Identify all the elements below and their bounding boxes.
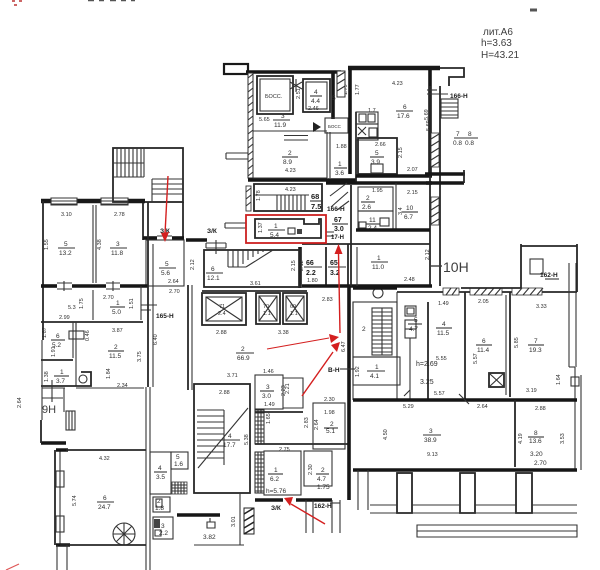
svg-text:2.48: 2.48 (404, 277, 415, 283)
svg-text:71: 71 (219, 304, 225, 310)
svg-text:2.99: 2.99 (59, 315, 70, 321)
svg-text:38.9: 38.9 (424, 437, 437, 444)
svg-text:6.47: 6.47 (341, 341, 347, 352)
svg-text:4.23: 4.23 (392, 81, 403, 87)
svg-text:5.4: 5.4 (270, 232, 279, 239)
svg-text:3.7: 3.7 (56, 378, 65, 385)
svg-text:4.23: 4.23 (285, 168, 296, 174)
svg-text:6: 6 (482, 338, 486, 345)
svg-text:2.83: 2.83 (322, 297, 333, 303)
svg-text:5: 5 (375, 150, 379, 157)
svg-text:7.5: 7.5 (311, 202, 321, 211)
svg-text:5.3: 5.3 (68, 305, 76, 311)
svg-text:4: 4 (442, 321, 446, 328)
svg-text:В-Н: В-Н (328, 367, 340, 374)
svg-text:3.71: 3.71 (227, 373, 238, 379)
svg-text:h=3.63: h=3.63 (481, 38, 512, 49)
svg-text:5.55: 5.55 (436, 356, 447, 362)
svg-text:2.30: 2.30 (324, 397, 335, 403)
svg-text:9.13: 9.13 (427, 452, 438, 458)
svg-text:11.5: 11.5 (109, 353, 122, 360)
svg-text:10Н: 10Н (443, 259, 469, 275)
svg-text:3.0: 3.0 (262, 393, 271, 400)
svg-text:2.21: 2.21 (285, 383, 291, 394)
svg-text:5.69: 5.69 (426, 120, 432, 131)
svg-text:11.8: 11.8 (111, 250, 124, 257)
svg-text:6: 6 (56, 333, 60, 340)
svg-text:1: 1 (375, 364, 379, 371)
svg-text:2.66: 2.66 (375, 142, 386, 148)
svg-text:4.7: 4.7 (317, 476, 326, 483)
svg-text:2.51: 2.51 (296, 88, 302, 99)
svg-text:66: 66 (306, 260, 314, 267)
svg-text:4.19: 4.19 (518, 433, 524, 444)
svg-text:19.3: 19.3 (529, 347, 542, 354)
svg-text:2: 2 (114, 344, 118, 351)
svg-text:5: 5 (64, 241, 68, 248)
svg-text:h=5.76: h=5.76 (266, 488, 286, 495)
svg-text:1.80: 1.80 (307, 278, 318, 284)
svg-text:1.65: 1.65 (266, 413, 272, 424)
svg-text:17.7: 17.7 (223, 442, 236, 449)
svg-text:1.88: 1.88 (336, 144, 347, 150)
svg-text:1.46: 1.46 (263, 369, 274, 375)
svg-text:3: 3 (281, 113, 285, 120)
svg-text:2.64: 2.64 (17, 397, 23, 408)
svg-text:10: 10 (406, 205, 414, 212)
svg-text:5.74: 5.74 (72, 495, 78, 506)
svg-text:2.30: 2.30 (308, 464, 314, 475)
svg-text:H=43.21: H=43.21 (481, 50, 520, 61)
svg-text:1.64: 1.64 (556, 374, 562, 385)
svg-text:1.49: 1.49 (264, 402, 275, 408)
svg-text:4.38: 4.38 (97, 239, 103, 250)
svg-text:лит.А6: лит.А6 (483, 27, 513, 38)
svg-text:68: 68 (311, 192, 319, 201)
svg-text:3.33: 3.33 (536, 304, 547, 310)
svg-text:8.9: 8.9 (283, 159, 292, 166)
svg-text:1.77: 1.77 (355, 84, 361, 95)
svg-text:1.87: 1.87 (42, 327, 48, 338)
svg-text:3.61: 3.61 (250, 281, 261, 287)
svg-text:1.98: 1.98 (324, 410, 335, 416)
svg-text:1.55: 1.55 (44, 239, 50, 250)
svg-text:2.2: 2.2 (306, 270, 316, 277)
svg-text:2.83: 2.83 (304, 417, 310, 428)
svg-text:1.49: 1.49 (438, 301, 449, 307)
svg-text:7: 7 (456, 131, 460, 138)
svg-text:3.82: 3.82 (203, 534, 216, 541)
svg-text:66.9: 66.9 (237, 355, 250, 362)
svg-text:11.5: 11.5 (437, 330, 450, 337)
svg-text:8: 8 (468, 131, 472, 138)
svg-text:4.7: 4.7 (409, 326, 418, 333)
svg-text:3.0: 3.0 (334, 226, 344, 233)
svg-text:2: 2 (321, 467, 325, 474)
svg-text:3: 3 (116, 241, 120, 248)
svg-text:2.64: 2.64 (314, 419, 320, 430)
svg-text:2.07: 2.07 (407, 167, 418, 173)
svg-text:67: 67 (334, 217, 342, 224)
svg-text:3.6: 3.6 (335, 170, 344, 177)
svg-text:4: 4 (158, 465, 162, 472)
svg-text:11: 11 (369, 217, 376, 224)
svg-text:3.20: 3.20 (530, 451, 543, 458)
svg-text:3.5: 3.5 (156, 474, 165, 481)
svg-text:12.1: 12.1 (207, 275, 220, 282)
svg-text:165-Н: 165-Н (156, 313, 174, 320)
svg-text:4.50: 4.50 (383, 429, 389, 440)
svg-text:2.05: 2.05 (478, 299, 489, 305)
svg-text:2.70: 2.70 (534, 460, 547, 467)
svg-text:3.53: 3.53 (560, 433, 566, 444)
svg-text:h=2.69: h=2.69 (416, 361, 438, 368)
svg-text:2: 2 (362, 326, 366, 333)
svg-text:5.85: 5.85 (514, 337, 520, 348)
svg-text:2: 2 (330, 421, 334, 428)
svg-text:3.38: 3.38 (278, 330, 289, 336)
svg-text:1: 1 (377, 255, 381, 262)
svg-text:11.0: 11.0 (372, 264, 385, 271)
svg-text:1.1: 1.1 (290, 311, 298, 317)
svg-text:65: 65 (330, 260, 338, 267)
svg-text:2.64: 2.64 (168, 279, 179, 285)
svg-text:0.46: 0.46 (85, 330, 91, 341)
svg-text:162-Н: 162-Н (314, 503, 332, 510)
svg-text:4.1: 4.1 (370, 373, 379, 380)
svg-text:1.84: 1.84 (106, 368, 112, 379)
svg-text:4.23: 4.23 (285, 187, 296, 193)
svg-text:2.4: 2.4 (218, 311, 226, 317)
svg-text:17-Н: 17-Н (331, 235, 344, 241)
svg-text:11.4: 11.4 (477, 347, 490, 354)
svg-text:4.32: 4.32 (99, 456, 110, 462)
svg-text:2.6: 2.6 (362, 204, 371, 211)
svg-text:2.15: 2.15 (398, 147, 404, 158)
svg-text:5.29: 5.29 (403, 404, 414, 410)
svg-text:6: 6 (403, 104, 407, 111)
svg-text:3: 3 (429, 428, 433, 435)
svg-text:1.91: 1.91 (51, 346, 57, 357)
svg-text:5: 5 (332, 95, 336, 102)
svg-text:0.8: 0.8 (465, 140, 474, 147)
svg-text:1: 1 (274, 467, 278, 474)
svg-text:2.64: 2.64 (477, 404, 488, 410)
svg-text:1.75: 1.75 (317, 484, 330, 491)
svg-text:3.01: 3.01 (231, 516, 237, 527)
svg-text:2.15: 2.15 (291, 260, 297, 271)
svg-text:0.8: 0.8 (453, 140, 462, 147)
svg-text:3.25: 3.25 (420, 379, 434, 386)
svg-text:5.65: 5.65 (259, 117, 270, 123)
svg-text:2.70: 2.70 (103, 295, 114, 301)
svg-text:2.46: 2.46 (308, 106, 319, 112)
svg-text:6: 6 (211, 266, 215, 273)
svg-text:2.15: 2.15 (407, 190, 418, 196)
svg-text:2.12: 2.12 (190, 259, 196, 270)
svg-text:1.78: 1.78 (256, 190, 262, 201)
svg-text:1: 1 (116, 300, 120, 307)
svg-text:2.70: 2.70 (169, 289, 180, 295)
svg-text:2.75: 2.75 (279, 447, 290, 453)
svg-text:1: 1 (60, 369, 64, 376)
svg-text:5: 5 (176, 454, 180, 461)
svg-text:2.12: 2.12 (425, 249, 431, 260)
svg-text:2: 2 (241, 346, 245, 353)
svg-text:13.6: 13.6 (529, 438, 542, 445)
svg-text:166-Н: 166-Н (327, 206, 345, 213)
svg-text:БОСС: БОСС (328, 124, 342, 129)
svg-text:З/К: З/К (207, 228, 217, 235)
svg-text:БОСС.: БОСС. (265, 94, 283, 100)
svg-text:1.75: 1.75 (79, 298, 85, 309)
svg-text:1.92: 1.92 (355, 366, 361, 377)
svg-text:3.87: 3.87 (112, 328, 123, 334)
svg-text:З/К: З/К (271, 505, 281, 512)
svg-text:3.19: 3.19 (526, 388, 537, 394)
svg-text:1: 1 (274, 223, 278, 230)
svg-text:5: 5 (165, 261, 169, 268)
svg-text:6.2: 6.2 (270, 476, 279, 483)
svg-text:6.7: 6.7 (404, 214, 413, 221)
svg-text:69: 69 (290, 304, 296, 310)
svg-text:5.57: 5.57 (473, 353, 479, 364)
svg-text:6: 6 (103, 495, 107, 502)
svg-text:5.57: 5.57 (434, 391, 445, 397)
svg-text:2.88: 2.88 (535, 406, 546, 412)
svg-text:13.2: 13.2 (59, 250, 72, 257)
svg-text:4: 4 (228, 433, 232, 440)
svg-text:5.1: 5.1 (326, 428, 335, 435)
svg-text:6.40: 6.40 (153, 334, 159, 345)
svg-text:17.6: 17.6 (397, 113, 410, 120)
svg-text:3.9: 3.9 (371, 159, 380, 166)
svg-text:1.51: 1.51 (129, 298, 135, 309)
svg-text:7: 7 (534, 338, 538, 345)
svg-text:5.38: 5.38 (244, 434, 250, 445)
svg-text:3: 3 (161, 523, 165, 530)
svg-text:11.9: 11.9 (274, 122, 287, 129)
svg-text:1.1: 1.1 (263, 311, 271, 317)
svg-text:2.88: 2.88 (219, 390, 230, 396)
svg-text:5: 5 (414, 317, 418, 324)
svg-text:1.38: 1.38 (44, 371, 50, 382)
svg-text:5.0: 5.0 (112, 309, 121, 316)
svg-text:70: 70 (263, 304, 269, 310)
svg-text:3.75: 3.75 (137, 351, 143, 362)
svg-text:24.7: 24.7 (98, 504, 111, 511)
svg-text:9Н: 9Н (42, 404, 56, 416)
svg-text:3.4: 3.4 (398, 207, 404, 215)
svg-text:1.95: 1.95 (372, 188, 383, 194)
svg-text:2.88: 2.88 (216, 330, 227, 336)
svg-text:5.6: 5.6 (161, 270, 170, 277)
svg-text:3.10: 3.10 (61, 212, 72, 218)
svg-text:2: 2 (366, 195, 370, 202)
svg-text:4: 4 (314, 89, 318, 96)
svg-text:1.6: 1.6 (174, 461, 183, 468)
svg-text:1.7: 1.7 (368, 108, 376, 114)
svg-text:2.78: 2.78 (114, 212, 125, 218)
svg-text:1: 1 (338, 161, 342, 168)
svg-text:1.37: 1.37 (258, 222, 264, 233)
svg-text:2: 2 (288, 150, 292, 157)
svg-text:162-Н: 162-Н (540, 272, 558, 279)
svg-text:3: 3 (266, 384, 270, 391)
svg-text:4.4: 4.4 (311, 98, 320, 105)
svg-text:8: 8 (534, 430, 538, 437)
